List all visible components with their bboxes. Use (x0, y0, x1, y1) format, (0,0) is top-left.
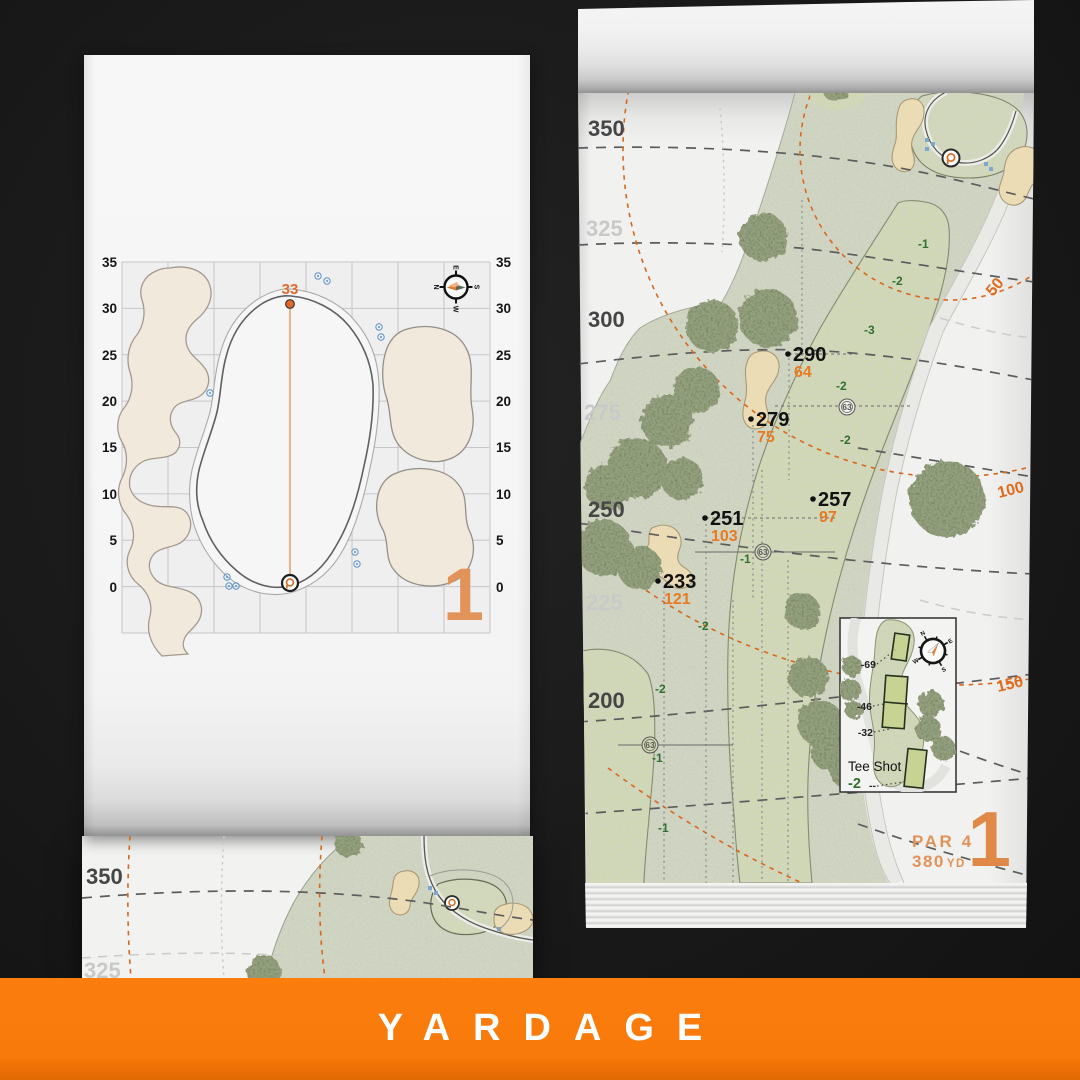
svg-text:275: 275 (584, 400, 621, 425)
svg-text:Tee Shot: Tee Shot (848, 759, 902, 774)
svg-text:S: S (473, 285, 480, 290)
svg-text:0: 0 (109, 580, 117, 595)
svg-text:30: 30 (102, 301, 117, 316)
svg-text:5: 5 (496, 533, 504, 548)
svg-text:-69: -69 (861, 659, 876, 671)
svg-text:W: W (452, 306, 459, 313)
svg-text:PAR 4: PAR 4 (912, 832, 974, 851)
svg-text:-1: -1 (740, 552, 751, 566)
svg-text:100: 100 (996, 479, 1026, 502)
svg-text:103: 103 (711, 528, 738, 545)
svg-text:15: 15 (496, 440, 512, 455)
svg-text:10: 10 (496, 487, 511, 502)
svg-text:-2: -2 (836, 379, 847, 393)
svg-text:1: 1 (968, 795, 1011, 883)
svg-text:25: 25 (496, 348, 512, 363)
svg-text:350: 350 (86, 864, 123, 889)
svg-text:-1: -1 (658, 821, 669, 835)
svg-text:35: 35 (496, 255, 512, 270)
svg-text:-1: -1 (652, 751, 663, 765)
svg-text:121: 121 (664, 591, 691, 608)
svg-text:64: 64 (794, 364, 812, 381)
svg-text:63: 63 (758, 547, 768, 557)
svg-text:225: 225 (586, 590, 623, 615)
svg-text:20: 20 (102, 394, 117, 409)
svg-text:290: 290 (793, 344, 826, 366)
svg-text:-1: -1 (918, 237, 929, 251)
svg-text:5: 5 (109, 533, 117, 548)
svg-text:20: 20 (496, 394, 511, 409)
svg-text:300: 300 (588, 307, 625, 332)
svg-text:--: -- (869, 780, 876, 792)
svg-text:97: 97 (819, 509, 837, 526)
svg-text:10: 10 (102, 487, 117, 502)
svg-text:25: 25 (102, 348, 118, 363)
svg-text:-32: -32 (858, 727, 873, 739)
svg-text:325: 325 (586, 216, 623, 241)
svg-text:-46: -46 (857, 701, 872, 713)
svg-text:250: 250 (588, 497, 625, 522)
svg-text:233: 233 (663, 571, 696, 593)
svg-text:15: 15 (102, 440, 118, 455)
svg-text:-3: -3 (864, 323, 875, 337)
svg-text:1: 1 (443, 553, 484, 636)
svg-text:-2: -2 (840, 433, 851, 447)
svg-text:35: 35 (102, 255, 118, 270)
svg-text:-2: -2 (655, 682, 666, 696)
svg-text:0: 0 (496, 580, 504, 595)
svg-text:-2: -2 (848, 776, 861, 792)
svg-text:-2: -2 (892, 274, 903, 288)
svg-text:251: 251 (710, 508, 743, 530)
svg-text:-2: -2 (698, 619, 709, 633)
svg-text:200: 200 (588, 688, 625, 713)
svg-text:E: E (452, 265, 459, 270)
svg-text:63: 63 (842, 402, 852, 412)
svg-text:30: 30 (496, 301, 511, 316)
svg-text:150: 150 (995, 673, 1025, 696)
svg-text:279: 279 (756, 409, 789, 431)
svg-text:75: 75 (757, 429, 775, 446)
svg-text:350: 350 (588, 116, 625, 141)
svg-text:N: N (432, 284, 439, 289)
svg-text:63: 63 (645, 740, 655, 750)
svg-text:257: 257 (818, 489, 851, 511)
svg-text:380YD: 380YD (912, 852, 966, 871)
svg-text:33: 33 (282, 281, 299, 298)
svg-text:50: 50 (983, 275, 1008, 300)
